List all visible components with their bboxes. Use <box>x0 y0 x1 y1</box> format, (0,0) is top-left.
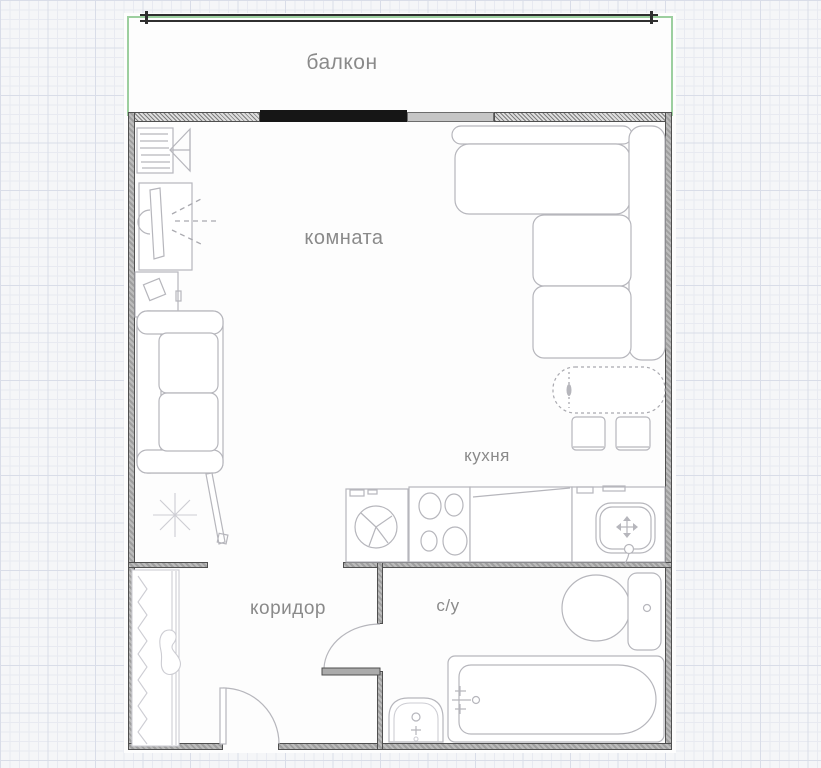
dining-table <box>553 367 665 413</box>
washbasin <box>389 698 443 742</box>
media-cabinet <box>135 272 181 317</box>
entrance-door <box>220 688 279 744</box>
stove <box>409 487 470 562</box>
bathroom-door <box>322 624 380 675</box>
kitchen-label: кухня <box>427 446 547 466</box>
bathtub <box>448 656 664 742</box>
ceiling-light-symbol <box>153 493 197 537</box>
tv-stand <box>138 183 218 270</box>
floor-plan-canvas: балкон комната кухня коридор с/у <box>0 0 821 768</box>
kitchen-sink <box>572 486 665 564</box>
stool-2 <box>616 417 650 450</box>
stool-1 <box>572 417 605 450</box>
countertop <box>470 487 572 562</box>
balcony-label: балкон <box>252 51 432 75</box>
room-door-leaf <box>206 473 228 544</box>
corner-sofa <box>452 126 665 360</box>
wardrobe <box>137 128 190 173</box>
room-label: комната <box>254 227 434 250</box>
washing-machine <box>346 489 408 562</box>
bathroom-door-leaf <box>322 668 380 675</box>
bathroom-label: с/у <box>408 596 488 616</box>
entrance-door-leaf <box>220 688 226 744</box>
corridor-label: коридор <box>218 598 358 620</box>
toilet <box>562 573 661 650</box>
hall-wardrobe <box>132 570 180 746</box>
sofa <box>137 311 223 473</box>
furniture-layer <box>0 0 821 768</box>
